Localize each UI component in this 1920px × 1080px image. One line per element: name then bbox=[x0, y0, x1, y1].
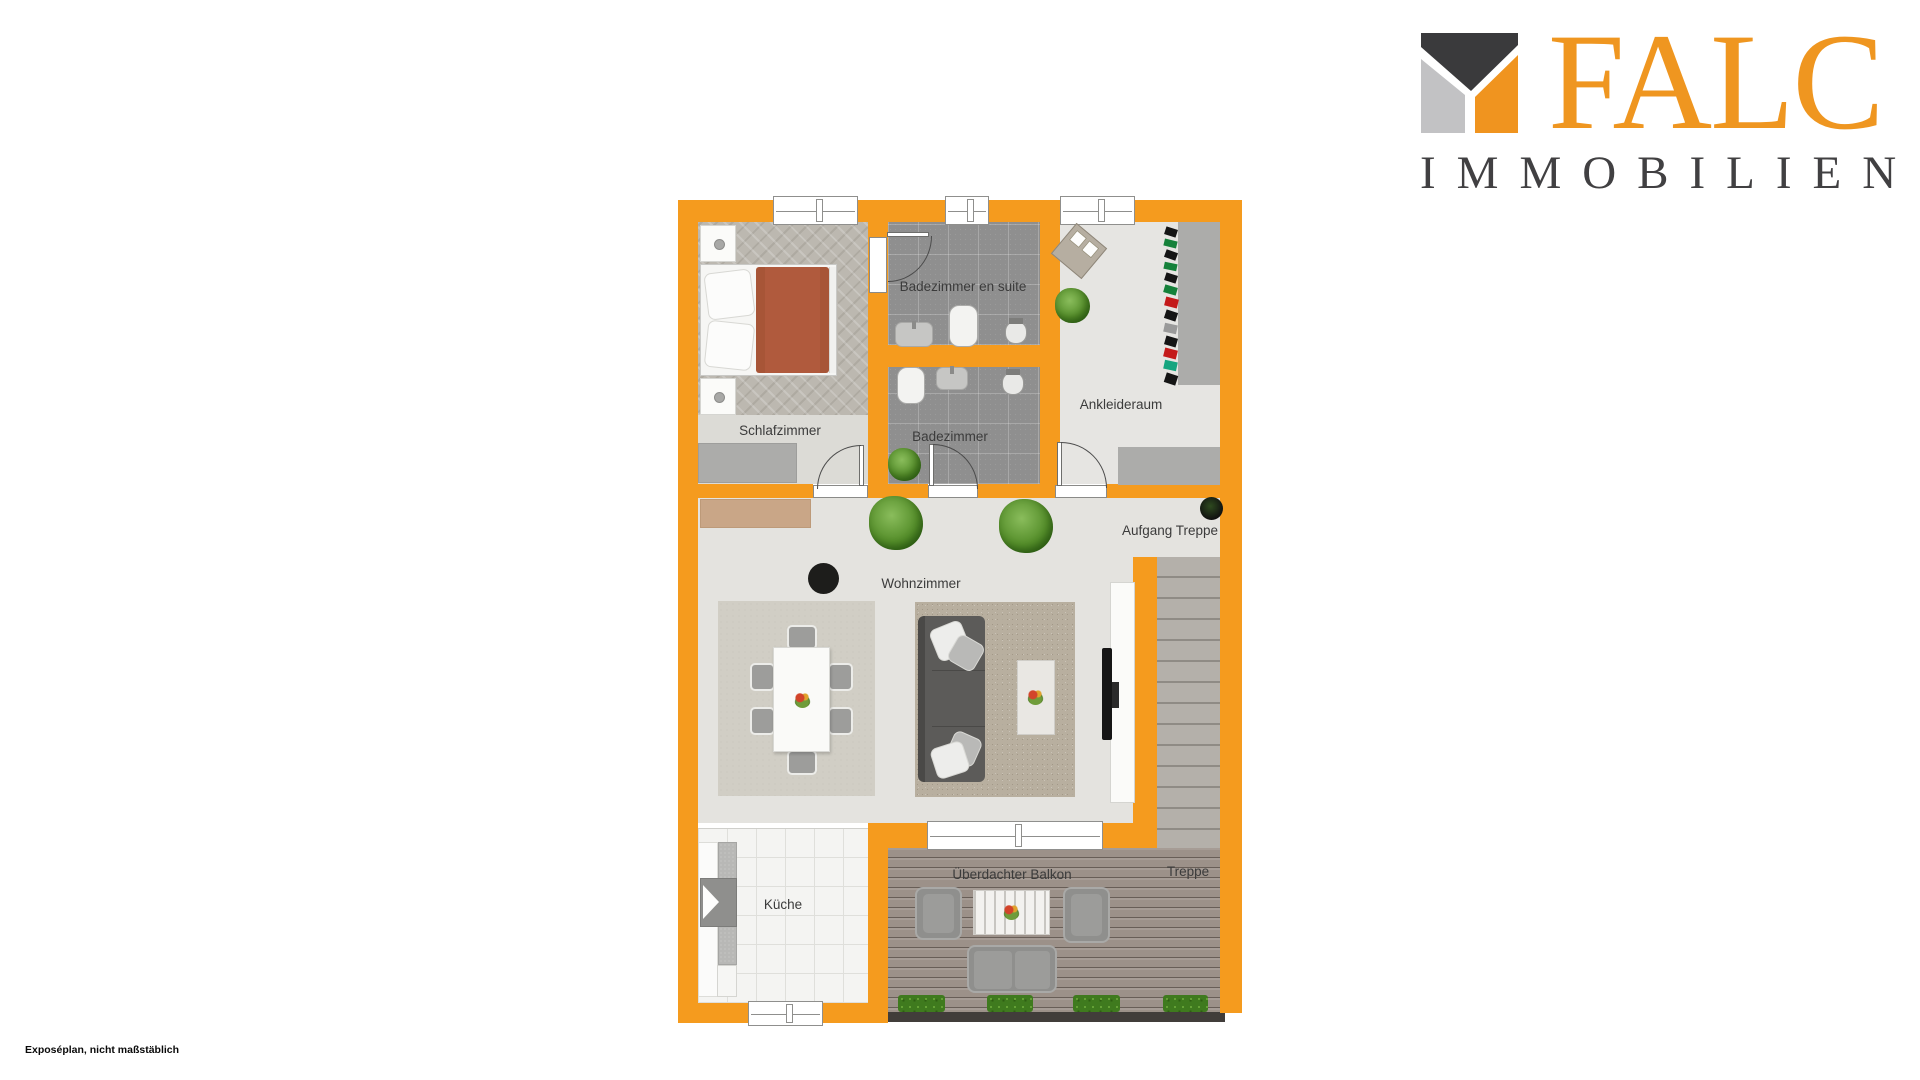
wardrobe bbox=[1118, 447, 1220, 485]
stool bbox=[808, 563, 839, 594]
wall-hall-3 bbox=[978, 484, 1055, 498]
bed-pillow bbox=[703, 268, 755, 320]
label-balkon: Überdachter Balkon bbox=[952, 867, 1071, 882]
plant-icon bbox=[869, 496, 923, 550]
toilet-icon bbox=[1002, 372, 1024, 395]
table-flowers-icon bbox=[1027, 688, 1044, 705]
bed-pillow bbox=[704, 320, 756, 372]
bed-blanket bbox=[756, 267, 829, 373]
wall-left bbox=[678, 200, 698, 1023]
label-schlafzimmer: Schlafzimmer bbox=[739, 423, 821, 438]
wall-right bbox=[1220, 200, 1242, 1013]
tv-icon bbox=[1102, 648, 1112, 740]
stairs bbox=[1157, 557, 1220, 848]
plant-icon bbox=[1055, 288, 1090, 323]
sideboard bbox=[700, 499, 811, 528]
wall-kitchen-right bbox=[868, 848, 888, 1023]
hedge-icon bbox=[898, 995, 945, 1012]
balcony-door-window bbox=[927, 821, 1103, 850]
chair bbox=[750, 707, 775, 735]
table-flowers-icon bbox=[794, 691, 811, 708]
plant-icon bbox=[888, 448, 921, 481]
wall-living-bottom-1 bbox=[868, 823, 927, 848]
bed bbox=[700, 264, 837, 376]
floor-plan: Schlafzimmer Badezimmer en suite Badezim… bbox=[0, 0, 1920, 1080]
disclaimer-text: Exposéplan, nicht maßstäblich bbox=[25, 1044, 179, 1056]
wardrobe bbox=[698, 443, 797, 483]
label-aufgang-treppe: Aufgang Treppe bbox=[1122, 523, 1218, 538]
plant-icon bbox=[999, 499, 1053, 553]
label-badezimmer: Badezimmer bbox=[912, 429, 988, 444]
potted-plant-icon bbox=[1200, 497, 1223, 520]
balcony-edge bbox=[888, 1012, 1225, 1022]
balcony-armchair bbox=[1063, 887, 1110, 943]
window-ensuite bbox=[945, 196, 989, 225]
wall-bath-divider bbox=[868, 345, 1060, 367]
chair bbox=[787, 750, 817, 775]
wall-hall-1 bbox=[698, 484, 813, 498]
sink-icon bbox=[895, 322, 933, 347]
hedge-icon bbox=[987, 995, 1033, 1012]
bathtub-icon bbox=[949, 305, 978, 347]
wall-stairs bbox=[1133, 557, 1157, 848]
balcony-armchair bbox=[915, 887, 962, 940]
kitchen-cabinet bbox=[717, 965, 737, 997]
label-ankleideraum: Ankleideraum bbox=[1080, 397, 1163, 412]
window-dressing bbox=[1060, 196, 1135, 225]
label-wohnzimmer: Wohnzimmer bbox=[881, 576, 960, 591]
window-bedroom bbox=[773, 196, 858, 225]
sofa bbox=[918, 616, 985, 782]
sink-icon bbox=[936, 367, 968, 390]
toilet-icon bbox=[1005, 321, 1027, 344]
clothes-rack bbox=[1163, 228, 1179, 388]
door-ensuite bbox=[869, 237, 887, 293]
tv-mount bbox=[1112, 682, 1119, 708]
chair bbox=[828, 663, 853, 691]
closet bbox=[1178, 222, 1220, 385]
hedge-icon bbox=[1163, 995, 1208, 1012]
hedge-icon bbox=[1073, 995, 1120, 1012]
chair bbox=[750, 663, 775, 691]
balcony-sofa bbox=[967, 945, 1057, 993]
shower-tub-icon bbox=[897, 367, 925, 404]
page: FALC IMMOBILIEN bbox=[0, 0, 1920, 1080]
bed-footboard bbox=[829, 267, 836, 373]
chair bbox=[828, 707, 853, 735]
kitchen-sink-unit bbox=[700, 878, 737, 927]
nightstand bbox=[700, 225, 736, 262]
table-flowers-icon bbox=[1003, 903, 1020, 920]
nightstand bbox=[700, 378, 736, 415]
label-kueche: Küche bbox=[764, 897, 802, 912]
wall-hall-4 bbox=[1107, 484, 1220, 498]
label-treppe: Treppe bbox=[1167, 864, 1209, 879]
window-kitchen bbox=[748, 1001, 823, 1026]
label-badezimmer-en-suite: Badezimmer en suite bbox=[900, 279, 1027, 294]
